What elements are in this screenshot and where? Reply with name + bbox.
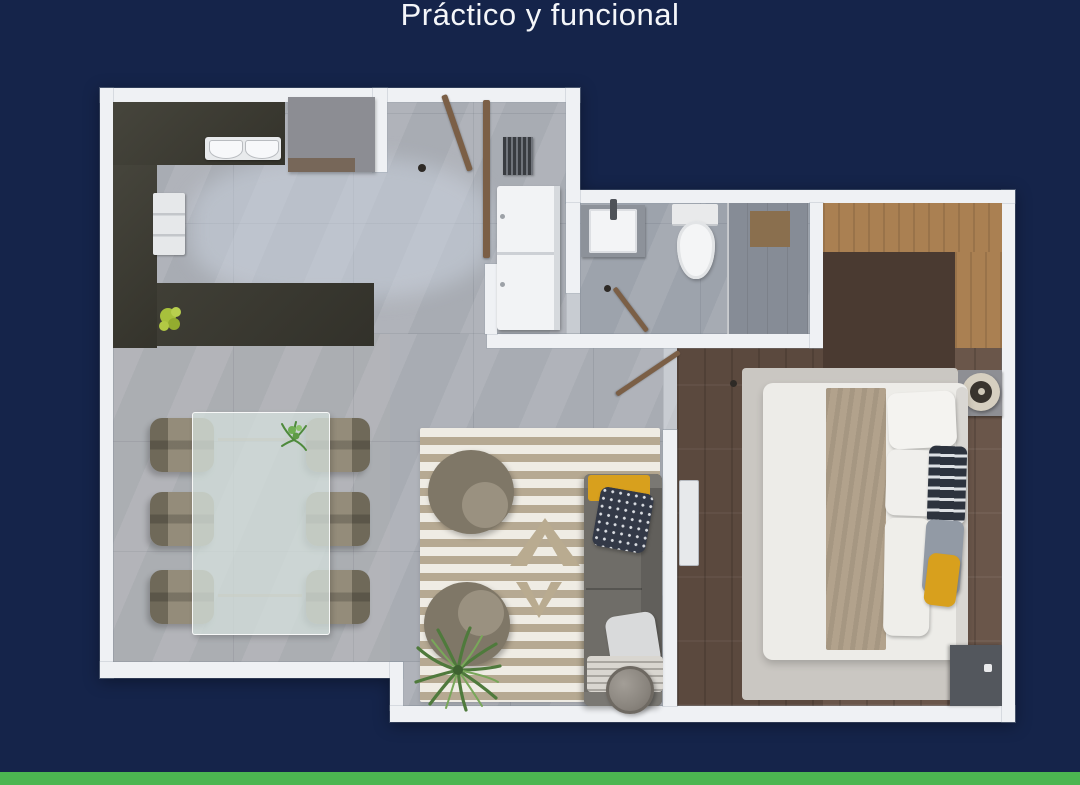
dining-area [100, 88, 1015, 722]
floor-plan [100, 88, 1015, 722]
poster: Práctico y funcional [0, 0, 1080, 785]
page-title: Práctico y funcional [0, 0, 1080, 34]
table-plant [278, 418, 310, 456]
bottom-accent-bar [0, 772, 1080, 785]
